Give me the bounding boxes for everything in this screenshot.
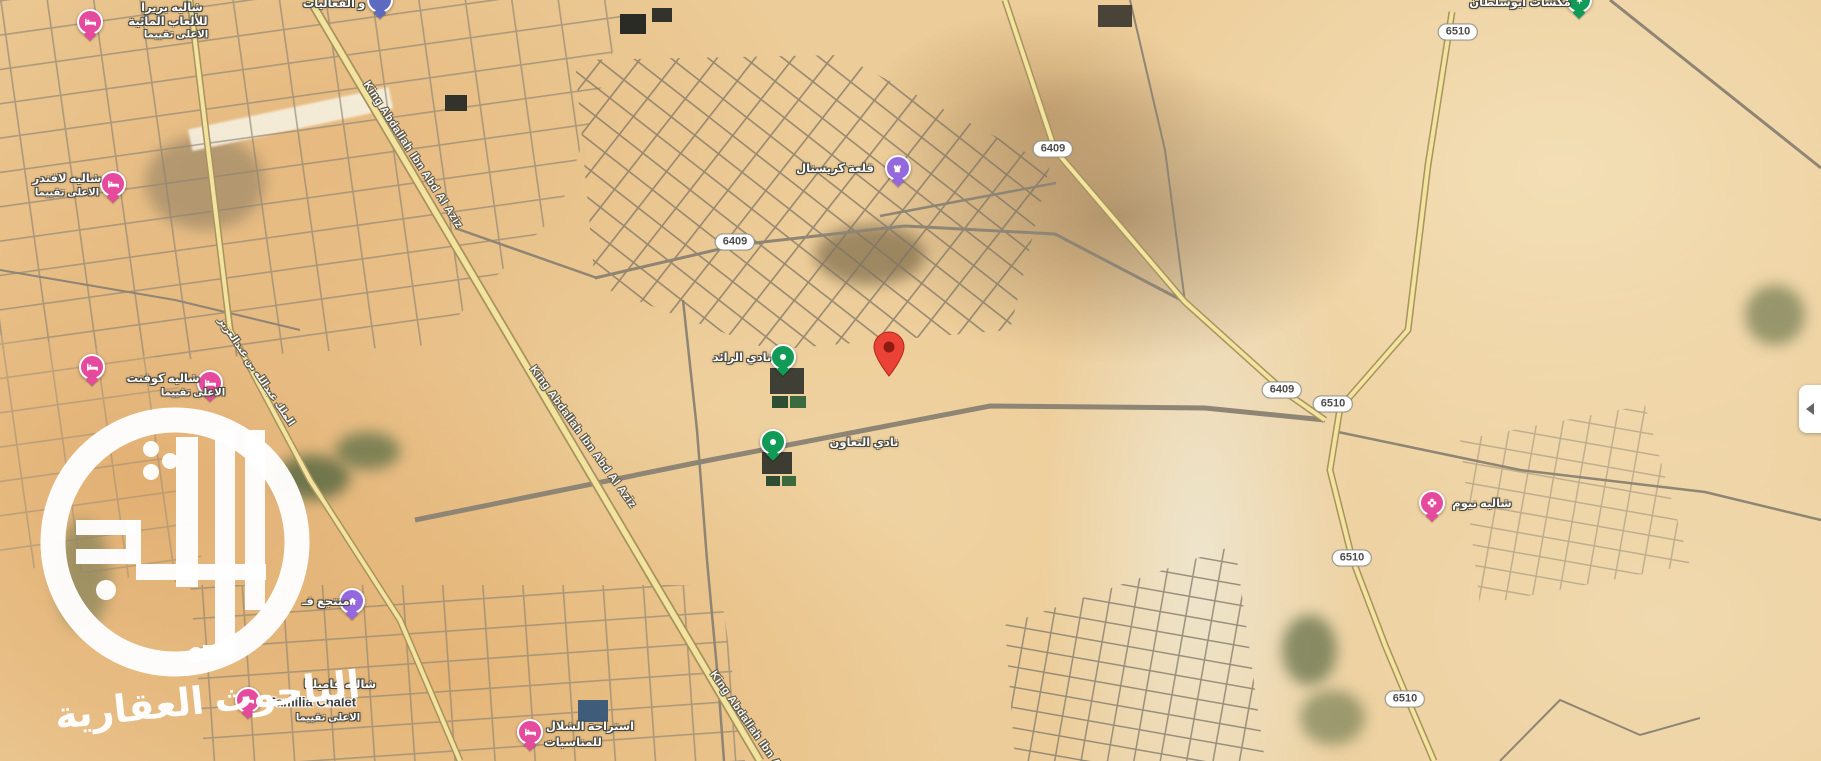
route-badge-6510: 6510 [1332, 550, 1372, 567]
satellite-map[interactable]: 6409 6409 6409 6510 6510 6510 6510 King … [0, 0, 1821, 761]
chalet-lavender-label[interactable]: الاعلى تقييما [35, 188, 99, 199]
chalet-brera-marker[interactable] [77, 9, 103, 35]
route-badge-6409: 6409 [715, 234, 755, 251]
shalal-resthouse-label[interactable]: للمناسبات [544, 735, 602, 749]
flower-icon [1425, 496, 1439, 510]
events-label[interactable]: و الفعاليات [303, 0, 366, 10]
chalet-familia-label-en[interactable]: Familia Chalet [268, 695, 356, 710]
route-badge-6510: 6510 [1385, 691, 1425, 708]
side-panel-toggle-button[interactable] [1799, 385, 1821, 433]
club-icon [777, 351, 789, 363]
roads-layer [0, 0, 1821, 761]
bed-icon [107, 178, 120, 191]
alraed-club-label[interactable]: نادي الرائد [713, 350, 772, 364]
chalet-covent-label[interactable]: الاعلى تقييما [161, 388, 225, 399]
chalet-covent-label[interactable]: شاليه كوفنت [126, 371, 199, 385]
altaawon-club-label[interactable]: نادي التعاون [830, 435, 899, 449]
chalet-familia-label[interactable]: الاعلى تقييما [296, 713, 360, 724]
lodging-marker[interactable] [79, 354, 105, 380]
chalet-lavender-label[interactable]: شاليه لافندر [33, 171, 102, 185]
crystal-castle-marker[interactable] [885, 155, 911, 181]
resort-label[interactable]: منتجع فـ [302, 594, 349, 608]
chalet-neom-marker[interactable] [1419, 490, 1445, 516]
route-badge-6409: 6409 [1262, 382, 1302, 399]
selected-location-pin[interactable] [873, 331, 905, 377]
castle-icon [892, 162, 905, 175]
alraed-club-marker[interactable] [770, 344, 796, 370]
chalet-lavender-marker[interactable] [100, 171, 126, 197]
chalet-brera-label[interactable]: الاعلى تقييما [144, 30, 208, 41]
tree-icon [1573, 0, 1586, 7]
altaawon-club-marker[interactable] [760, 429, 786, 455]
club-icon [767, 436, 779, 448]
shalal-resthouse-label[interactable]: استراحة الشلال [546, 719, 634, 733]
route-badge-6510: 6510 [1313, 396, 1353, 413]
crystal-castle-label[interactable]: قلعة كريستال [796, 161, 874, 175]
chalet-familia-label[interactable]: شاليه فاميليا [304, 677, 376, 691]
route-badge-6409: 6409 [1033, 141, 1073, 158]
chalet-neom-label[interactable]: شاليه نيوم [1452, 496, 1511, 510]
shalal-resthouse-marker[interactable] [517, 719, 543, 745]
bed-icon [242, 694, 255, 707]
bed-icon [86, 361, 99, 374]
bed-icon [524, 726, 537, 739]
chalet-familia-marker[interactable] [235, 687, 261, 713]
chalet-brera-label[interactable]: للألعاب المائية [128, 14, 207, 28]
abu-sultan-label[interactable]: مكشات ابوسلطان [1469, 0, 1570, 9]
bed-icon [84, 16, 97, 29]
chevron-left-icon [1806, 403, 1814, 415]
route-badge-6510: 6510 [1438, 24, 1478, 41]
chalet-brera-label[interactable]: شاليه بريرا [141, 0, 203, 14]
